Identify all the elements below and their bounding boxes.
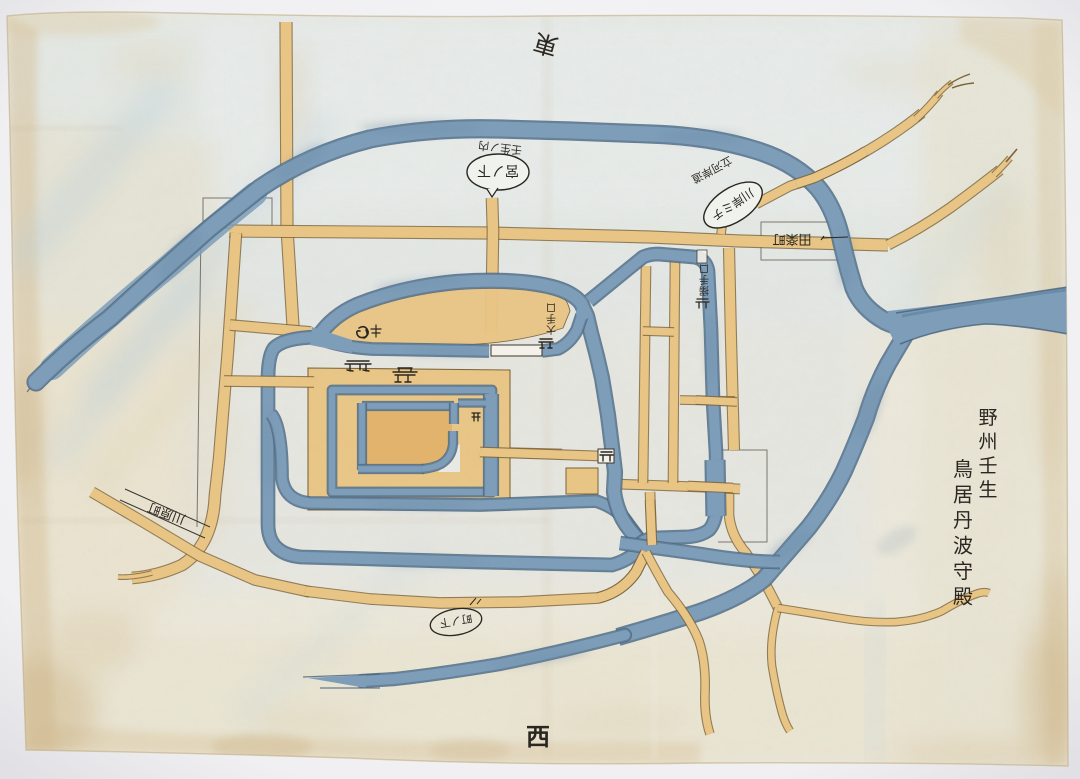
svg-text:田楽町: 田楽町	[772, 232, 811, 247]
svg-text:宮ノ下: 宮ノ下	[477, 163, 519, 179]
svg-text:西: 西	[526, 725, 550, 751]
svg-text:大手口: 大手口	[546, 301, 556, 336]
svg-text:搦手口: 搦手口	[699, 262, 709, 297]
